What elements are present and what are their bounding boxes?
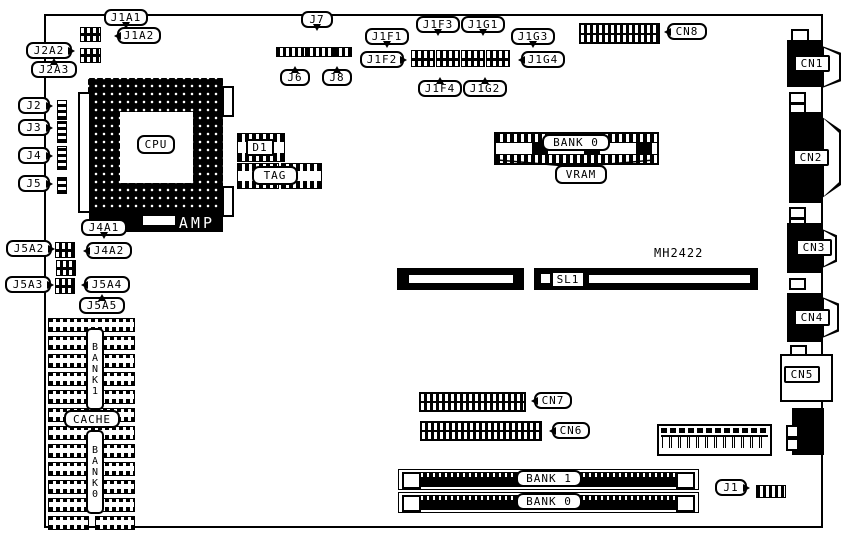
simm-bank0-clip-right [676, 495, 695, 512]
jumper-block-j1f1-j1f2 [411, 50, 435, 67]
label-cn4: CN4 [794, 309, 830, 326]
motherboard-diagram: J1A1 J1A2 J2A2 J2A3 J2 J3 J4 J5 CPU AMP … [0, 0, 843, 536]
jumper-block-j2a2-j2a3 [80, 48, 101, 63]
label-vram-bank0: BANK 0 [542, 134, 610, 151]
label-j1g3: J1G3 [511, 28, 555, 45]
label-j2a3: J2A3 [31, 61, 77, 78]
label-sl1: SL1 [551, 271, 585, 288]
label-j7: J7 [301, 11, 333, 28]
label-cn2: CN2 [793, 149, 829, 166]
slot-left-segment [397, 268, 524, 290]
simm-bank1-clip-left [402, 472, 421, 489]
cpu-socket-tab-bottom [222, 186, 234, 217]
cache-row [48, 516, 135, 530]
slot-left-stripe [409, 275, 513, 283]
label-cache-bank1: BANK1 [86, 328, 104, 410]
pin-header-j4 [57, 146, 67, 170]
label-j1f1: J1F1 [365, 28, 409, 45]
label-j1g4: J1G4 [521, 51, 565, 68]
label-vram: VRAM [555, 165, 607, 184]
amp-brand-text: AMP [179, 214, 215, 232]
label-cn3: CN3 [796, 239, 832, 256]
pin-header-j5 [57, 177, 67, 194]
pin-header-cn8 [579, 23, 660, 44]
label-cn8: CN8 [667, 23, 707, 40]
label-j2a2: J2A2 [26, 42, 72, 59]
amp-bar-window [143, 216, 175, 225]
slot-sl1-stripe [589, 275, 750, 283]
label-d1: D1 [246, 139, 274, 156]
jumper-block-j1g3-j1g4 [486, 50, 510, 67]
cpu-socket-tab-top [222, 86, 234, 117]
jumper-block-j1a1-j1a2 [80, 27, 101, 42]
label-j5a3: J5A3 [5, 276, 51, 293]
label-j1f4: J1F4 [418, 80, 462, 97]
label-j1a2: J1A2 [117, 27, 161, 44]
cpu-socket-lever [78, 92, 91, 213]
jumper-block-j5a-mid [56, 260, 76, 276]
label-j1f3: J1F3 [416, 16, 460, 33]
pin-header-j3 [57, 121, 67, 143]
label-simm-bank1: BANK 1 [516, 470, 582, 487]
pin-strip-j8 [335, 47, 352, 57]
simm-bank1-clip-right [676, 472, 695, 489]
power-connector-pins [661, 435, 768, 448]
jumper-block-j1f3-j1f4 [436, 50, 460, 67]
label-tag: TAG [252, 166, 298, 185]
pin-strip-j1 [756, 485, 786, 498]
pin-strip-j7 [306, 47, 335, 57]
power-connector-tabs [661, 428, 768, 433]
label-j4: J4 [18, 147, 50, 164]
label-cpu: CPU [137, 135, 175, 154]
label-cn7: CN7 [534, 392, 572, 409]
label-cn6: CN6 [552, 422, 590, 439]
label-j5: J5 [18, 175, 50, 192]
simm-bank0-clip-left [402, 495, 421, 512]
part-number-text: MH2422 [654, 246, 703, 260]
label-j4a2: J4A2 [86, 242, 132, 259]
label-j1g1: J1G1 [461, 16, 505, 33]
power-connector [657, 424, 772, 456]
rear-tab [789, 278, 806, 290]
label-j4a1: J4A1 [81, 219, 127, 236]
slot-sl1-key [541, 274, 550, 283]
label-j5a4: J5A4 [84, 276, 130, 293]
label-cache-bank0: BANK0 [86, 430, 104, 514]
label-j2: J2 [18, 97, 50, 114]
label-j5a2: J5A2 [6, 240, 52, 257]
label-simm-bank0: BANK 0 [516, 493, 582, 510]
label-j1: J1 [715, 479, 747, 496]
label-j5a5: J5A5 [79, 297, 125, 314]
label-j1a1: J1A1 [104, 9, 148, 26]
label-j1g2: J1G2 [463, 80, 507, 97]
label-j1f2: J1F2 [360, 51, 404, 68]
jumper-block-j5a-low [55, 278, 75, 294]
keyboard-connector-tab [786, 438, 799, 451]
keyboard-connector-tab [786, 425, 799, 438]
label-cn1: CN1 [794, 55, 830, 72]
jumper-block-j1g1-j1g2 [461, 50, 485, 67]
label-cn5: CN5 [784, 366, 820, 383]
label-cache: CACHE [64, 410, 120, 428]
label-j6: J6 [280, 69, 310, 86]
pin-header-cn7 [419, 392, 526, 412]
pin-header-cn6 [420, 421, 542, 441]
pin-strip-j6 [276, 47, 306, 57]
label-j8: J8 [322, 69, 352, 86]
label-j3: J3 [18, 119, 50, 136]
pin-header-j2 [57, 100, 67, 120]
